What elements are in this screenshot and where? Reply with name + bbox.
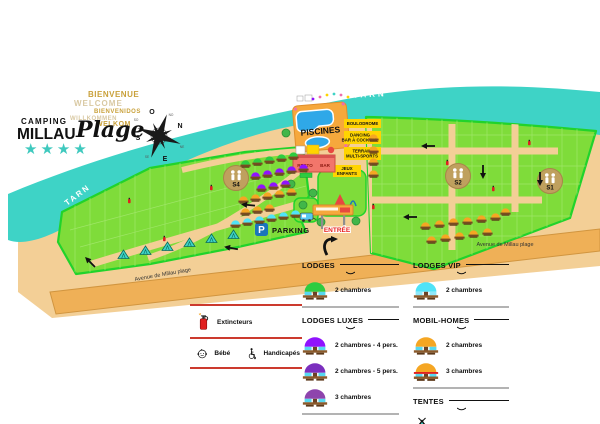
wheelchair-icon xyxy=(248,344,257,363)
legend-luxes-item-1: 2 chambres - 4 pers. xyxy=(302,335,399,356)
lodge-vip-icon xyxy=(413,280,439,301)
lodge-luxe-icon-1 xyxy=(302,335,328,356)
legend-column-right: LODGES VIP 2 chambres MOBIL-HOMES xyxy=(413,261,509,424)
legend-column-left: LODGES 2 chambres LODGES LUXES xyxy=(302,261,399,420)
legend-lodges-item: 2 chambres xyxy=(302,280,399,301)
squiggle-icon xyxy=(457,271,466,276)
boulodrome-label: BOULODROME xyxy=(347,121,379,126)
legend-mobilhomes-header: MOBIL-HOMES xyxy=(413,316,509,325)
legend-luxes-item-3: 3 chambres xyxy=(302,387,399,408)
squiggle-icon xyxy=(457,407,466,412)
welcome-line-es: BIENVENIDOS xyxy=(94,109,141,115)
legend-luxes-item-1-label: 2 chambres - 4 pers. xyxy=(335,342,398,349)
lodge-green-icon xyxy=(302,280,328,301)
logo-stars: ★★★★ xyxy=(24,142,90,157)
legend-luxes-title: LODGES LUXES xyxy=(302,316,363,325)
parking-p-icon: P xyxy=(258,225,265,236)
compass-e: E xyxy=(163,156,168,163)
sanitaire-s2-label: S2 xyxy=(454,181,462,187)
legend-tentes-title: TENTES xyxy=(413,397,444,406)
legend-luxes-header: LODGES LUXES xyxy=(302,316,399,325)
legend-mobilhomes-item-2: 3 chambres xyxy=(413,361,509,382)
squiggle-icon xyxy=(346,271,355,276)
handicapes-label: Handicapés xyxy=(263,350,300,357)
legend-divider xyxy=(302,413,399,415)
camping-millau-plage-map-page: PISCINES BOULODROME DANCING BAR À COCKTA… xyxy=(0,0,600,424)
fire-extinguisher-icon xyxy=(197,311,210,333)
lodge-luxe-icon-2 xyxy=(302,361,328,382)
legend-rule xyxy=(340,264,399,265)
tent-icon xyxy=(407,416,437,424)
entree-label: ENTRÉE xyxy=(324,225,351,234)
mobil-home-icon-2 xyxy=(413,361,439,382)
legend-vip-header: LODGES VIP xyxy=(413,261,509,270)
legend-vip-item: 2 chambres xyxy=(413,280,509,301)
compass-o: O xyxy=(149,109,155,116)
beach-decor xyxy=(297,93,349,101)
jeux-label-2: ENFANTS xyxy=(337,171,357,176)
legend-mobilhomes-item-1: 2 chambres xyxy=(413,335,509,356)
legend-lodges-item-label: 2 chambres xyxy=(335,287,371,294)
mobil-home-icon-1 xyxy=(413,335,439,356)
legend-lodges-title: LODGES xyxy=(302,261,335,270)
legend-tentes-item xyxy=(413,416,509,424)
extincteurs-label: Extincteurs xyxy=(217,319,252,326)
sanitaire-s4-label: S4 xyxy=(232,183,240,189)
legend-rule xyxy=(474,319,509,320)
sanitaire-s1-label: S1 xyxy=(546,186,554,192)
lodge-luxe-icon-3 xyxy=(302,387,328,408)
bar-label: BAR xyxy=(320,163,330,168)
legend-rule xyxy=(466,264,509,265)
legend-luxes-item-2: 2 chambres - 5 pers. xyxy=(302,361,399,382)
bebe-handicapes-row: Bébé Handicapés xyxy=(190,339,302,367)
extincteurs-row: Extincteurs xyxy=(190,306,302,337)
legend-divider xyxy=(413,387,509,389)
compass-ne: NE xyxy=(180,145,184,149)
avenue-label-right: Avenue de Millau plage xyxy=(476,242,533,248)
legend-mobilhomes-item-2-label: 3 chambres xyxy=(446,368,482,375)
baby-icon xyxy=(197,345,207,362)
legend-luxes-item-3-label: 3 chambres xyxy=(335,394,371,401)
welcome-line-en: WELCOME xyxy=(74,100,123,108)
legend-vip-item-label: 2 chambres xyxy=(446,287,482,294)
legend-vip-title: LODGES VIP xyxy=(413,261,461,270)
compass-n: N xyxy=(177,123,182,130)
services-box: Extincteurs Bébé Handicapés xyxy=(190,304,302,369)
legend-mobilhomes-item-1-label: 2 chambres xyxy=(446,342,482,349)
piscines-area: PISCINES xyxy=(292,102,350,153)
legend-rule xyxy=(449,400,509,401)
welcome-line-fr: BIENVENUE xyxy=(88,91,139,99)
parking-label: PARKING xyxy=(272,226,310,235)
logo-camping: CAMPING xyxy=(21,118,67,126)
tarn-label-top: TARN xyxy=(353,89,387,100)
legend-mobilhomes-title: MOBIL-HOMES xyxy=(413,316,469,325)
compass-no: NO xyxy=(169,113,174,117)
bebe-label: Bébé xyxy=(214,350,230,357)
legend-luxes-item-2-label: 2 chambres - 5 pers. xyxy=(335,368,398,375)
logo-plage: Plage xyxy=(76,119,145,141)
services-divider-bottom xyxy=(190,367,302,369)
legend-divider xyxy=(302,306,399,308)
legend-lodges-header: LODGES xyxy=(302,261,399,270)
legend-divider xyxy=(413,306,509,308)
legend-rule xyxy=(368,319,399,320)
terrain-label-2: MULTI-SPORTS xyxy=(346,154,378,159)
squiggle-icon xyxy=(346,326,355,331)
compass-se: SE xyxy=(145,155,149,159)
squiggle-icon xyxy=(457,326,466,331)
legend-tentes-header: TENTES xyxy=(413,397,509,406)
